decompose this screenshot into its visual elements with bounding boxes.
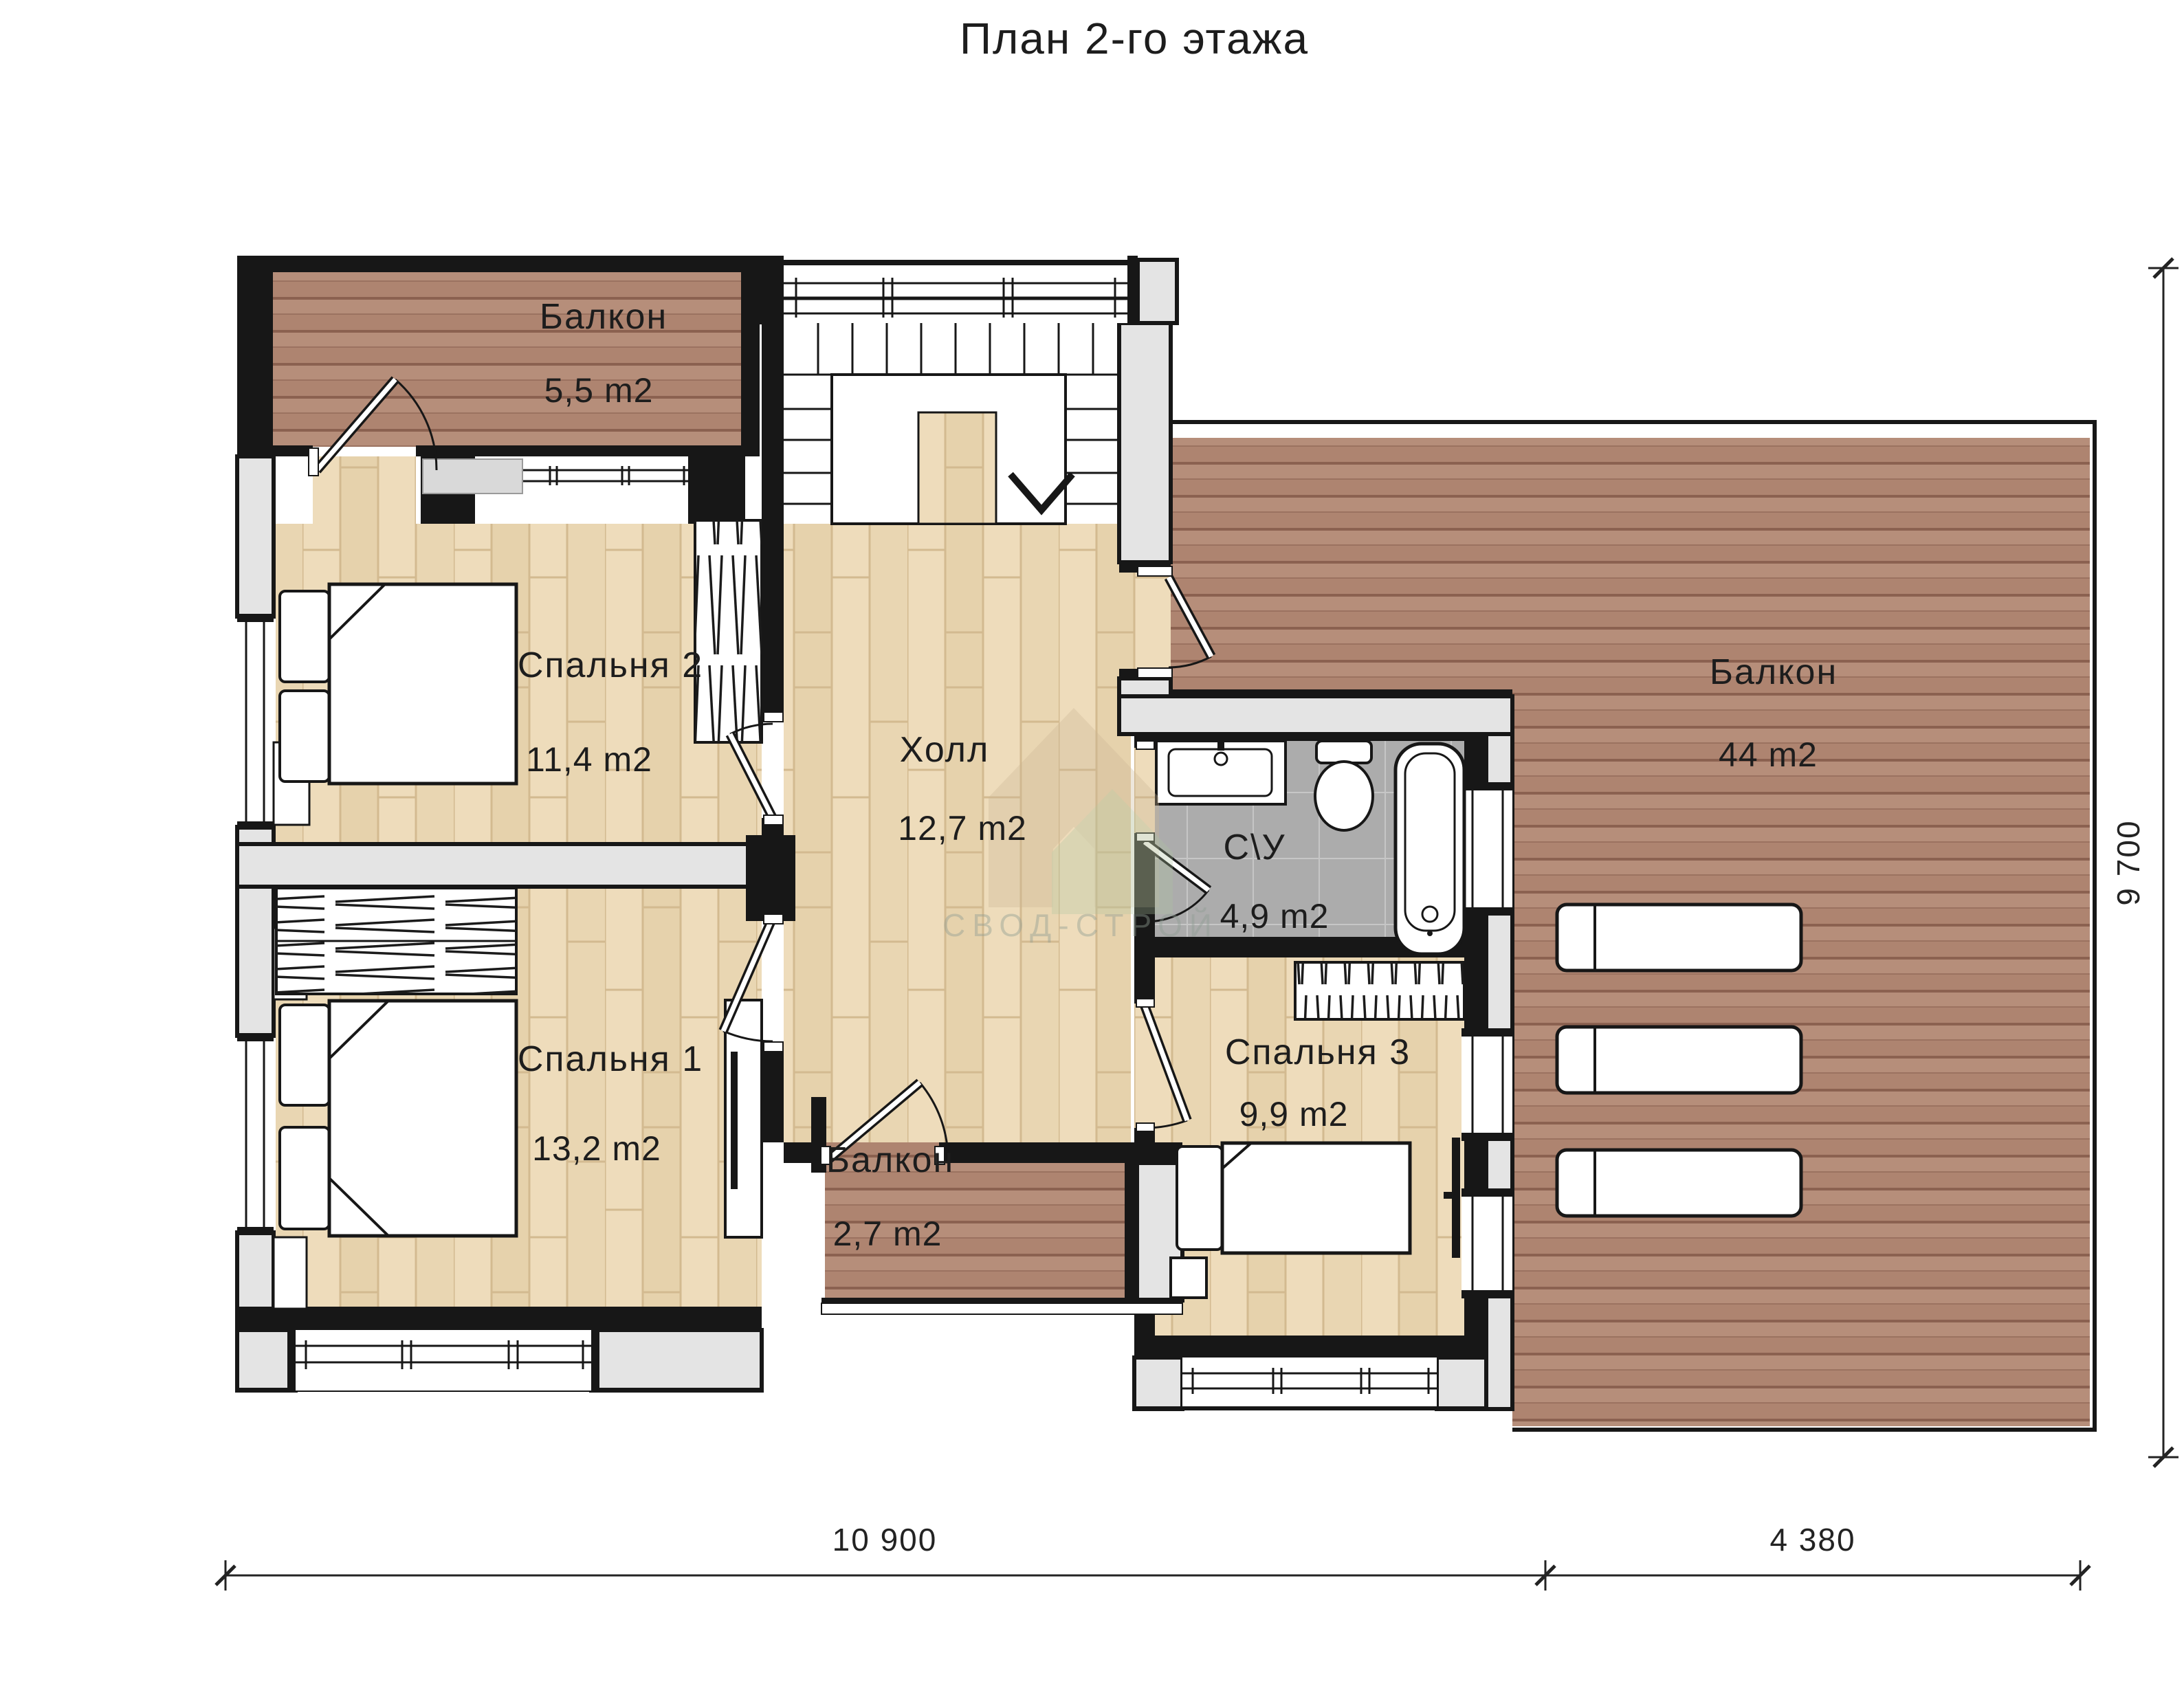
room-label-balcony-top: Балкон	[540, 297, 668, 337]
room-label-hall: Холл	[900, 730, 990, 770]
room-label-bedroom1: Спальня 1	[518, 1039, 703, 1079]
room-area-balcony-top: 5,5 m2	[544, 371, 654, 410]
room-label-balcony-right: Балкон	[1710, 652, 1838, 692]
room-area-bathroom: 4,9 m2	[1220, 897, 1330, 935]
room-label-bedroom3: Спальня 3	[1225, 1032, 1411, 1072]
window-bathroom-east	[1461, 782, 1512, 916]
room-area-balcony-right: 44 m2	[1719, 735, 1818, 774]
room-area-hall: 12,7 m2	[898, 809, 1027, 847]
balcony-top-left-deck	[273, 271, 742, 447]
window-stairwell-top	[784, 274, 1127, 323]
wardrobe-icon	[276, 888, 516, 994]
sink-icon	[1156, 741, 1286, 804]
wardrobe-icon	[695, 520, 762, 742]
window-bedroom3-east-lower	[1461, 1188, 1512, 1298]
sun-lounger-icon	[1557, 905, 1801, 971]
radiator	[274, 1237, 307, 1309]
watermark-text: СВОД-СТРОЙ	[942, 907, 1219, 943]
bathtub-icon	[1396, 744, 1464, 954]
room-area-bedroom3: 9,9 m2	[1239, 1095, 1349, 1133]
wardrobe-icon	[1295, 962, 1464, 1019]
window-bedroom1-south	[287, 1330, 599, 1391]
window-sill-block	[423, 459, 522, 494]
staircase	[784, 323, 1127, 524]
sun-lounger-icon	[1557, 1150, 1801, 1216]
window-bedroom1-west	[235, 1033, 276, 1235]
floor-plan-canvas: СВОД-СТРОЙ Балкон 5,5 m2 Спальня 2 11,4 …	[0, 0, 2184, 1684]
room-label-bathroom: С\У	[1223, 828, 1286, 867]
room-label-balcony-small: Балкон	[826, 1140, 954, 1180]
window-bedroom2-west	[235, 614, 276, 830]
dimension-bottom-main: 10 900	[832, 1522, 938, 1558]
dresser-tv-icon	[725, 1000, 762, 1237]
room-area-balcony-small: 2,7 m2	[833, 1215, 942, 1253]
room-area-bedroom2: 11,4 m2	[526, 740, 652, 779]
window-bedroom3-east-upper	[1461, 1028, 1512, 1141]
room-label-bedroom2: Спальня 2	[518, 645, 703, 685]
dimension-side: 9 700	[2110, 819, 2146, 905]
window-bedroom3-south	[1182, 1358, 1437, 1406]
room-area-bedroom1: 13,2 m2	[532, 1129, 661, 1168]
page-title: План 2-го этажа	[960, 14, 1309, 63]
toilet-icon	[1315, 741, 1373, 830]
sun-lounger-icon	[1557, 1027, 1801, 1093]
stair-opening	[918, 412, 996, 524]
dimension-bottom-right: 4 380	[1769, 1522, 1855, 1558]
